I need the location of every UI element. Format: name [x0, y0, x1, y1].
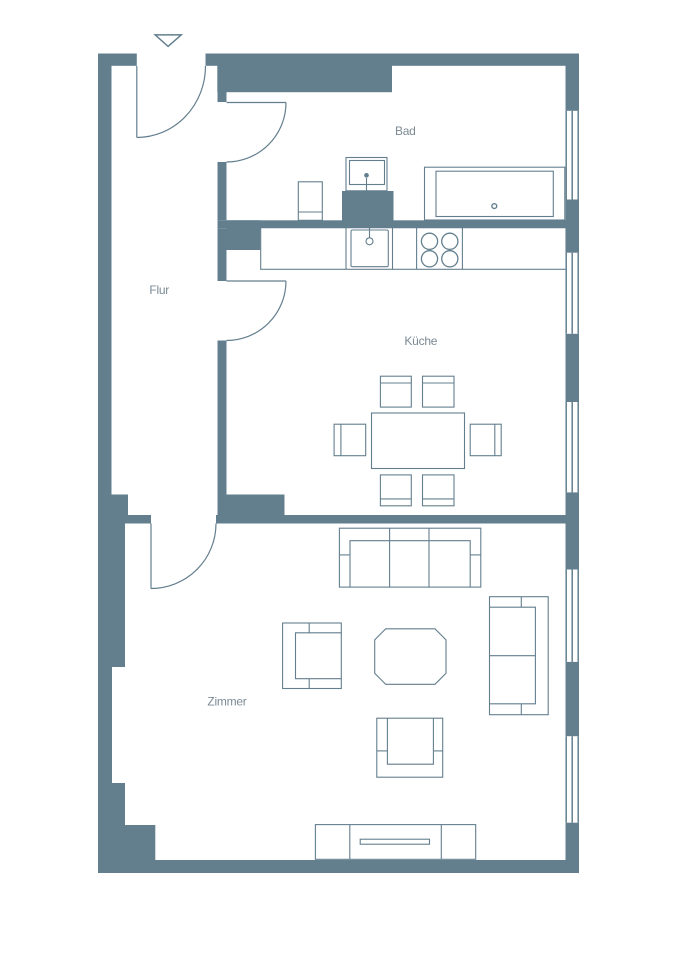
svg-text:Küche: Küche: [404, 334, 437, 348]
svg-text:Flur: Flur: [149, 283, 169, 297]
svg-text:Bad: Bad: [395, 124, 416, 138]
svg-text:Zimmer: Zimmer: [207, 694, 246, 708]
